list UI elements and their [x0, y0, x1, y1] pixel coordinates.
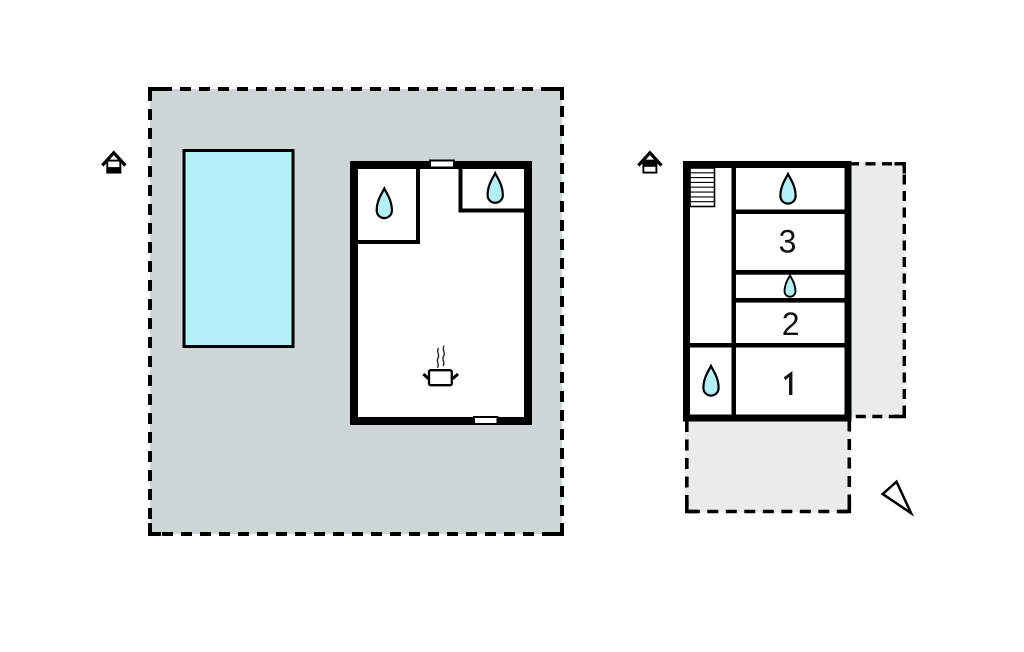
- svg-text:2: 2: [782, 306, 800, 342]
- svg-text:3: 3: [779, 224, 797, 260]
